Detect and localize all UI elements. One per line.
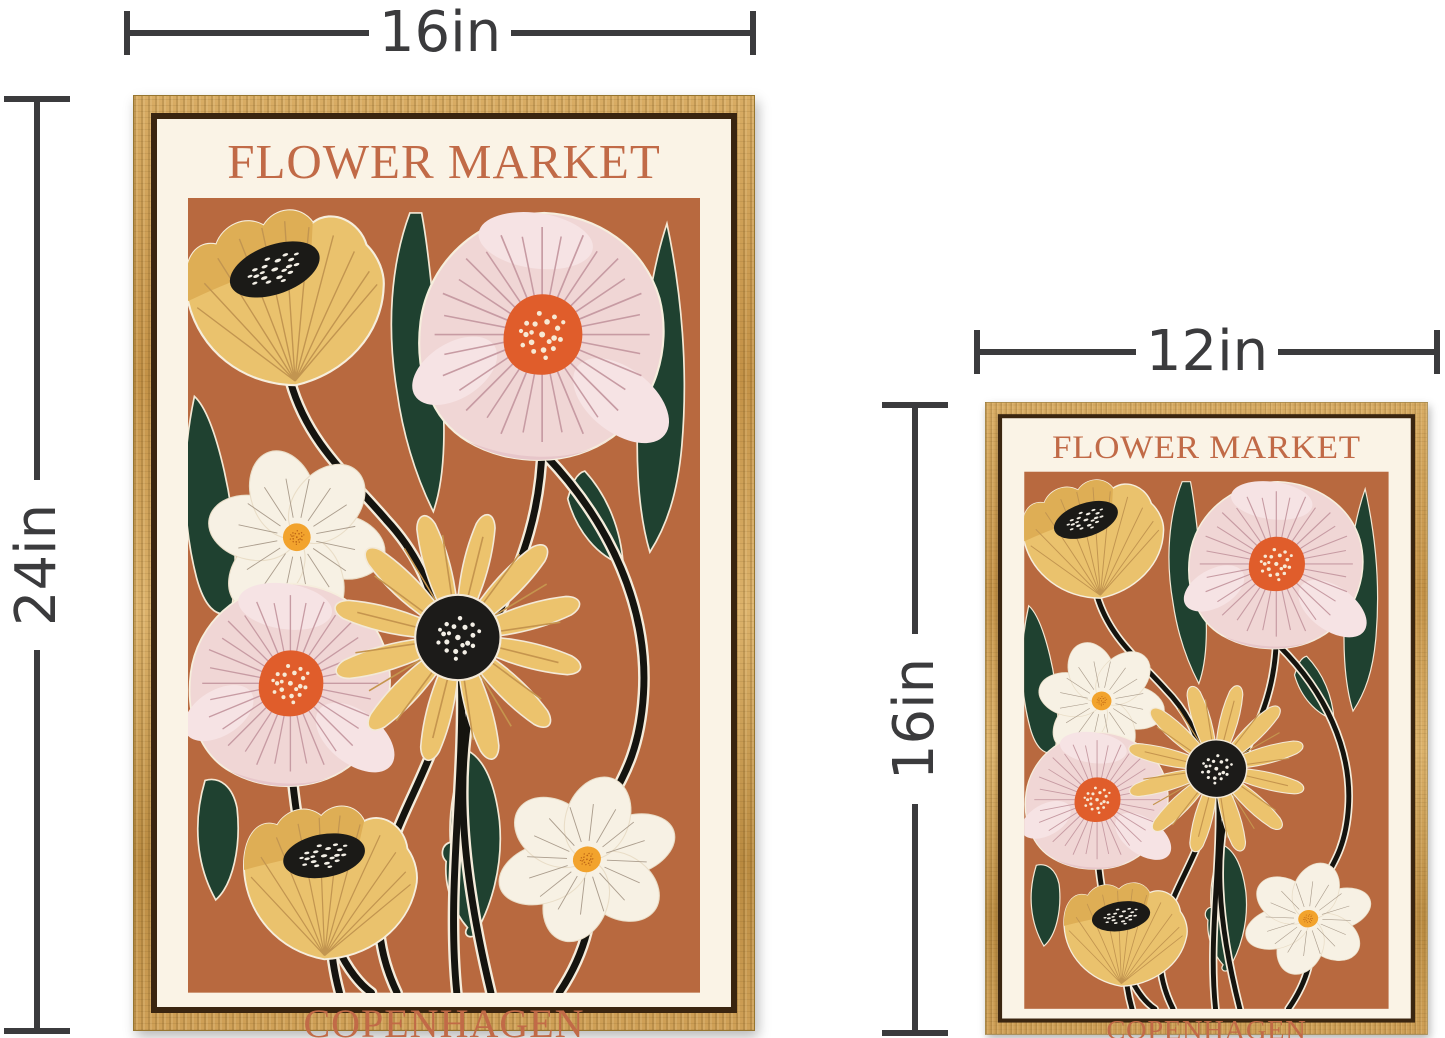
framed-poster-large: FLOWER MARKET COPENHAGEN PRINT COLLECTIO…	[133, 95, 755, 1031]
flower-artwork-svg	[188, 198, 700, 993]
width-dimension-small: 12in	[974, 319, 1440, 385]
frame-inner-lip: FLOWER MARKET COPENHAGEN PRINT COLLECTIO…	[998, 414, 1415, 1022]
frame-inner-lip: FLOWER MARKET COPENHAGEN PRINT COLLECTIO…	[151, 113, 737, 1013]
dimension-line	[1278, 349, 1434, 355]
flower-artwork-svg	[1024, 472, 1389, 1009]
width-dimension-large: 16in	[124, 0, 756, 66]
height-label-large: 24in	[9, 504, 65, 626]
poster-title: FLOWER MARKET	[1002, 429, 1411, 466]
poster-frame: FLOWER MARKET COPENHAGEN PRINT COLLECTIO…	[985, 402, 1428, 1035]
height-label-wrap: 24in	[4, 480, 70, 650]
framed-poster-small: FLOWER MARKET COPENHAGEN PRINT COLLECTIO…	[985, 402, 1428, 1035]
poster-paper: FLOWER MARKET COPENHAGEN PRINT COLLECTIO…	[157, 119, 731, 1007]
poster-frame: FLOWER MARKET COPENHAGEN PRINT COLLECTIO…	[133, 95, 755, 1031]
width-label-small: 12in	[1136, 324, 1278, 380]
height-label-wrap: 16in	[882, 634, 948, 804]
height-dimension-small: 16in	[882, 402, 948, 1036]
poster-title: FLOWER MARKET	[157, 135, 731, 190]
poster-city: COPENHAGEN	[157, 1003, 731, 1038]
width-label-large: 16in	[369, 5, 511, 61]
dimension-cap-right	[1434, 330, 1440, 374]
dimension-line	[34, 102, 40, 480]
dimension-line	[980, 349, 1136, 355]
poster-city: COPENHAGEN	[1002, 1015, 1411, 1038]
height-dimension-large: 24in	[4, 96, 70, 1034]
height-label-small: 16in	[887, 658, 943, 780]
poster-paper: FLOWER MARKET COPENHAGEN PRINT COLLECTIO…	[1002, 418, 1411, 1018]
dimension-cap-bottom	[4, 1028, 70, 1034]
framed-poster-small-inner: FLOWER MARKET COPENHAGEN PRINT COLLECTIO…	[985, 402, 1428, 1035]
dimension-line	[34, 650, 40, 1028]
dimension-line	[912, 804, 918, 1030]
dimension-line	[130, 30, 369, 36]
poster-art	[188, 198, 700, 993]
dimension-line	[912, 408, 918, 634]
dimension-line	[511, 30, 750, 36]
dimension-cap-right	[750, 11, 756, 55]
dimension-cap-bottom	[882, 1030, 948, 1036]
product-dimension-diagram: 16in 24in 12in 16in FLO	[0, 0, 1445, 1038]
poster-art	[1024, 472, 1389, 1009]
